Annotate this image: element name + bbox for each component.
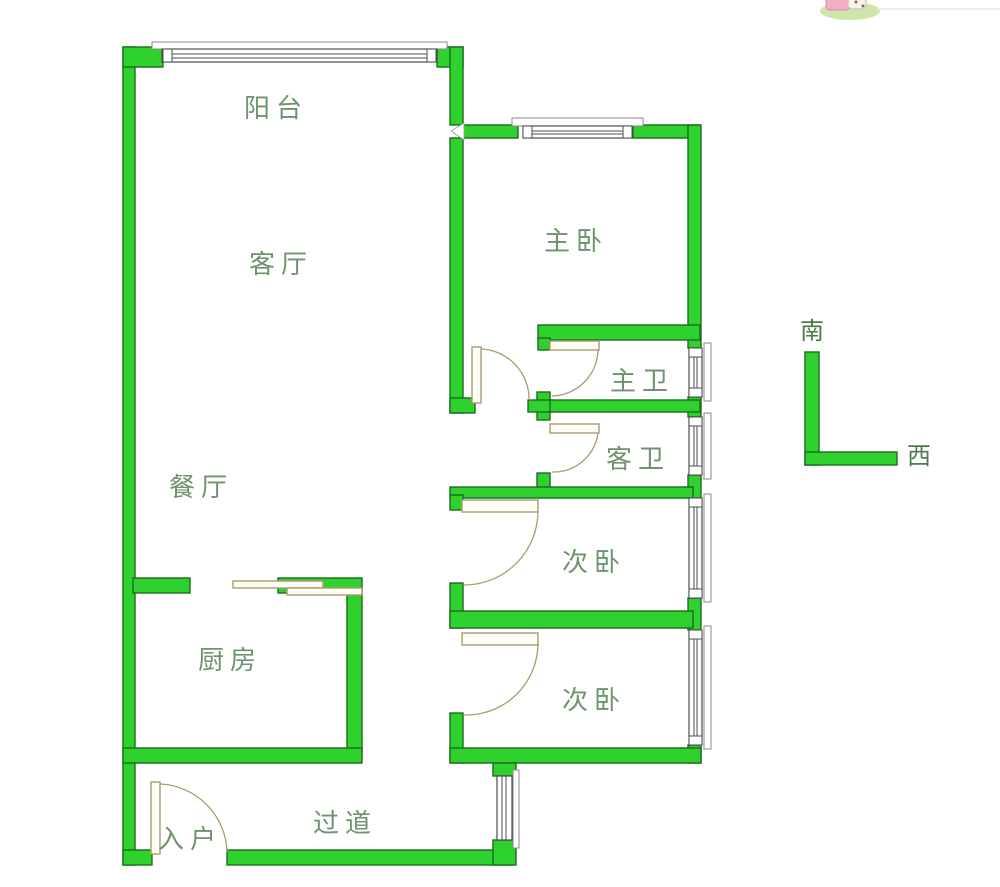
room-label-living: 客厅: [249, 250, 313, 279]
room-label-master: 主卧: [544, 227, 608, 256]
compass-bar-horizontal: [805, 452, 897, 465]
wall-bath-divider: [550, 400, 700, 412]
compass-bar-vertical: [805, 352, 819, 465]
wall-left-outer: [123, 47, 135, 865]
window-second-bedroom-2: [689, 626, 711, 749]
wall-top-left-stub: [123, 47, 163, 67]
door-second-bedroom-2: [462, 633, 538, 715]
wall-bedroom1-left-a: [450, 495, 463, 510]
wall-living-right-lower: [450, 138, 463, 413]
door-master-bath: [550, 341, 599, 396]
window-master-bedroom: [512, 118, 643, 138]
wall-cross-h: [528, 400, 552, 412]
floor-plan-canvas: 阳台 客厅 主卧 主卫 客卫 次卧 次卧 餐厅 厨房 过道 入户 南 西: [0, 0, 1000, 887]
window-guest-bath: [689, 413, 711, 479]
wall-foot-stub: [450, 398, 475, 413]
wall-bottom-left: [123, 850, 152, 865]
room-label-bedroom2: 次卧: [562, 686, 626, 715]
compass-west-label: 西: [907, 444, 931, 470]
wall-master-bottom: [538, 325, 700, 340]
window-second-bedroom-1: [689, 494, 711, 602]
room-label-entrance: 入户: [158, 825, 222, 854]
wall-kitchen-top-left: [133, 578, 190, 593]
window-balcony: [152, 42, 447, 62]
wall-bottom-right: [227, 850, 512, 865]
wall-masterbath-stub: [538, 338, 550, 350]
room-label-masterbath: 主卫: [610, 367, 674, 396]
window-hallway: [497, 770, 519, 848]
room-label-hallway: 过道: [313, 809, 377, 838]
door-guest-bath: [550, 424, 599, 472]
door-second-bedroom-1: [462, 500, 538, 585]
room-label-bedroom1: 次卧: [562, 548, 626, 577]
door-bath-lobby: [472, 347, 529, 403]
wall-master-top-left: [463, 125, 518, 138]
window-master-bath: [689, 343, 711, 401]
wall-right-outer-1: [688, 125, 701, 348]
compass: 南 西: [800, 318, 931, 470]
doors-layer: [151, 341, 599, 854]
room-label-kitchen: 厨房: [198, 646, 262, 675]
floor-plan: 阳台 客厅 主卧 主卫 客卫 次卧 次卧 餐厅 厨房 过道 入户 南 西: [0, 0, 1000, 887]
room-label-guestbath: 客卫: [606, 445, 670, 474]
room-label-balcony: 阳台: [244, 94, 308, 123]
wall-bedroom1-top: [450, 487, 693, 498]
wall-living-right-upper: [450, 47, 463, 125]
wall-bedroom-divider: [450, 611, 693, 628]
wall-bedroom2-bottom: [450, 748, 701, 763]
room-labels-layer: 阳台 客厅 主卧 主卫 客卫 次卧 次卧 餐厅 厨房 过道 入户: [158, 94, 674, 854]
wall-kitchen-right: [347, 590, 362, 753]
wall-kitchen-bottom: [123, 748, 362, 763]
watermark-logo-icon: [820, 0, 1000, 20]
compass-south-label: 南: [800, 318, 824, 345]
room-label-dining: 餐厅: [169, 473, 233, 502]
